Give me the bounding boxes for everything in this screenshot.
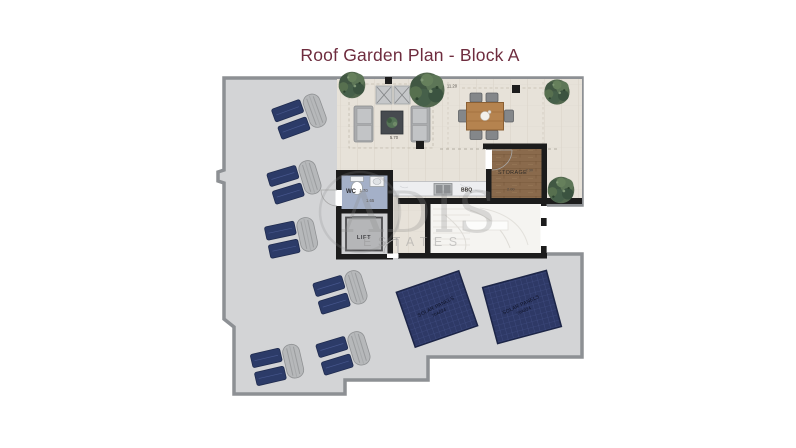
- dimension-lounge: 5.70: [390, 135, 399, 140]
- storage-dim1: 2.30: [526, 168, 534, 173]
- storage-dim2: 2.00: [507, 187, 515, 192]
- dimension-top: 11.20: [447, 84, 458, 89]
- tree: [339, 72, 366, 99]
- tree: [410, 73, 445, 108]
- floor-plan-drawing: WC 1.70 1.65 LIFT STORAGE 2.30 2.00 BBQ …: [0, 0, 796, 448]
- tree: [548, 177, 575, 204]
- storage-label: STORAGE: [498, 170, 527, 176]
- watermark: ADIS ESTATES: [320, 172, 498, 252]
- roof-garden-plan-page: Roof Garden Plan - Block A: [0, 0, 796, 448]
- tree: [544, 79, 569, 104]
- watermark-subtitle: ESTATES: [363, 235, 464, 249]
